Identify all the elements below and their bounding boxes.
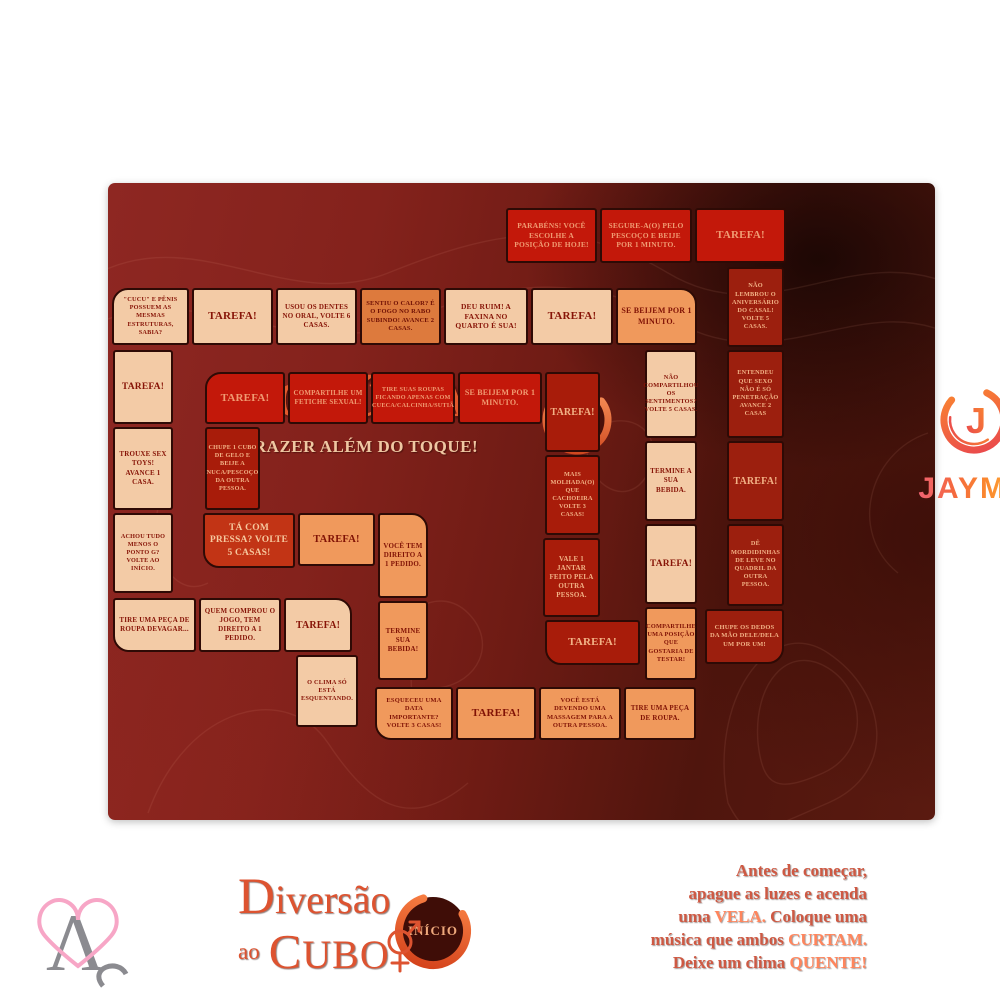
board-tile: TAREFA!	[531, 288, 613, 345]
board-tile: VALE 1 JANTAR FEITO PELA OUTRA PESSOA.	[543, 538, 600, 617]
game-subtitle: PRAZER ALÉM DO TOQUE!	[243, 437, 478, 457]
board-tile: TROUXE SEX TOYS! AVANCE 1 CASA.	[113, 427, 173, 510]
board-tile: TERMINE A SUA BEBIDA.	[645, 441, 697, 521]
game-board: VOLÚPIA PRAZER ALÉM DO TOQUE! FIM INÍCIO	[108, 183, 935, 820]
board-tile: TÁ COM PRESSA? VOLTE 5 CASAS!	[203, 513, 295, 568]
board-tile: VOCÊ ESTÁ DEVENDO UMA MASSAGEM PARA A OU…	[539, 687, 621, 740]
board-tile: TAREFA!	[284, 598, 352, 652]
board-tile: TAREFA!	[695, 208, 786, 263]
board-tile: TAREFA!	[727, 441, 784, 521]
intro-note-line: uma VELA. Coloque uma	[602, 905, 867, 928]
intro-note-line: apague as luzes e acenda	[602, 882, 867, 905]
intro-note-line: música que ambos CURTAM.	[602, 928, 867, 951]
board-tile: VOCÊ TEM DIREITO A 1 PEDIDO.	[378, 513, 428, 598]
tagline-line2: ao CUBO	[238, 924, 424, 980]
tagline: Diversão ao CUBO	[238, 871, 424, 980]
board-tile: TIRE UMA PEÇA DE ROUPA.	[624, 687, 696, 740]
board-tile: COMPARTILHE UM FETICHE SEXUAL!	[288, 372, 368, 424]
intro-note: Antes de começar,apague as luzes e acend…	[602, 859, 867, 975]
intro-note-line: Deixe um clima QUENTE!	[602, 951, 867, 974]
board-tile: ESQUECEU UMA DATA IMPORTANTE? VOLTE 3 CA…	[375, 687, 453, 740]
board-tile: QUEM COMPROU O JOGO, TEM DIREITO A 1 PED…	[199, 598, 281, 652]
board-tile: CHUPE OS DEDOS DA MÃO DELE/DELA UM POR U…	[705, 609, 784, 664]
board-tile: SENTIU O CALOR? É O FOGO NO RABO SUBINDO…	[360, 288, 441, 345]
board-tile: TAREFA!	[545, 372, 600, 452]
board-tile: NÃO LEMBROU O ANIVERSÁRIO DO CASAL! VOLT…	[727, 267, 784, 347]
board-tile: TAREFA!	[298, 513, 375, 566]
board-tile: ACHOU TUDO MENOS O PONTO G? VOLTE AO INÍ…	[113, 513, 173, 593]
board-tile: NÃO COMPARTILHOU OS SENTIMENTOS? VOLTE 5…	[645, 350, 697, 438]
board-tile: TAREFA!	[192, 288, 273, 345]
board-tile: TAREFA!	[545, 620, 640, 665]
board-tile: TAREFA!	[113, 350, 173, 424]
board-tile: DÊ MORDIDINHAS DE LEVE NO QUADRIL DA OUT…	[727, 524, 784, 606]
board-tile: TAREFA!	[205, 372, 285, 424]
board-tile: SE BEIJEM POR 1 MINUTO.	[616, 288, 697, 345]
product-photo: VOLÚPIA PRAZER ALÉM DO TOQUE! FIM INÍCIO	[0, 0, 1000, 1000]
tagline-cubo: CUBO	[269, 924, 390, 980]
board-tile: SE BEIJEM POR 1 MINUTO.	[458, 372, 542, 424]
board-tile: TIRE SUAS ROUPAS FICANDO APENAS COM CUEC…	[371, 372, 455, 424]
board-tile: CHUPE 1 CUBO DE GELO E BEIJE A NUCA/PESC…	[205, 427, 260, 510]
board-tile: TAREFA!	[456, 687, 536, 740]
intro-note-line: Antes de começar,	[602, 859, 867, 882]
board-tile: "CUCU" E PÊNIS POSSUEM AS MESMAS ESTRUTU…	[112, 288, 189, 345]
brand-wordmark: JAYMA	[902, 472, 1000, 506]
board-tile: TERMINE SUA BEBIDA!	[378, 601, 428, 680]
board-tile: TIRE UMA PEÇA DE ROUPA DEVAGAR...	[113, 598, 196, 652]
board-tile: SEGURE-A(O) PELO PESCOÇO E BEIJE POR 1 M…	[600, 208, 692, 263]
watermark-logo: Λ	[18, 878, 138, 996]
board-tile: O CLIMA SÓ ESTÁ ESQUENTANDO.	[296, 655, 358, 727]
board-tile: TAREFA!	[645, 524, 697, 604]
board-tile: MAIS MOLHADA(O) QUE CACHOEIRA VOLTE 3 CA…	[545, 455, 600, 535]
board-tile: ENTENDEU QUE SEXO NÃO É SÓ PENETRAÇÃO AV…	[727, 350, 784, 438]
board-tile: USOU OS DENTES NO ORAL, VOLTE 6 CASAS.	[276, 288, 357, 345]
tagline-ao: ao	[238, 939, 260, 965]
brand-monogram: J	[966, 400, 986, 441]
board-tile: DEU RUIM! A FAXINA NO QUARTO É SUA!	[444, 288, 528, 345]
male-female-symbol-icon	[382, 915, 424, 975]
brand-logo-icon: J	[935, 381, 1000, 459]
board-tile: COMPARTILHE UMA POSIÇÃO QUE GOSTARIA DE …	[645, 607, 697, 680]
board-tile: PARABÉNS! VOCÊ ESCOLHE A POSIÇÃO DE HOJE…	[506, 208, 597, 263]
